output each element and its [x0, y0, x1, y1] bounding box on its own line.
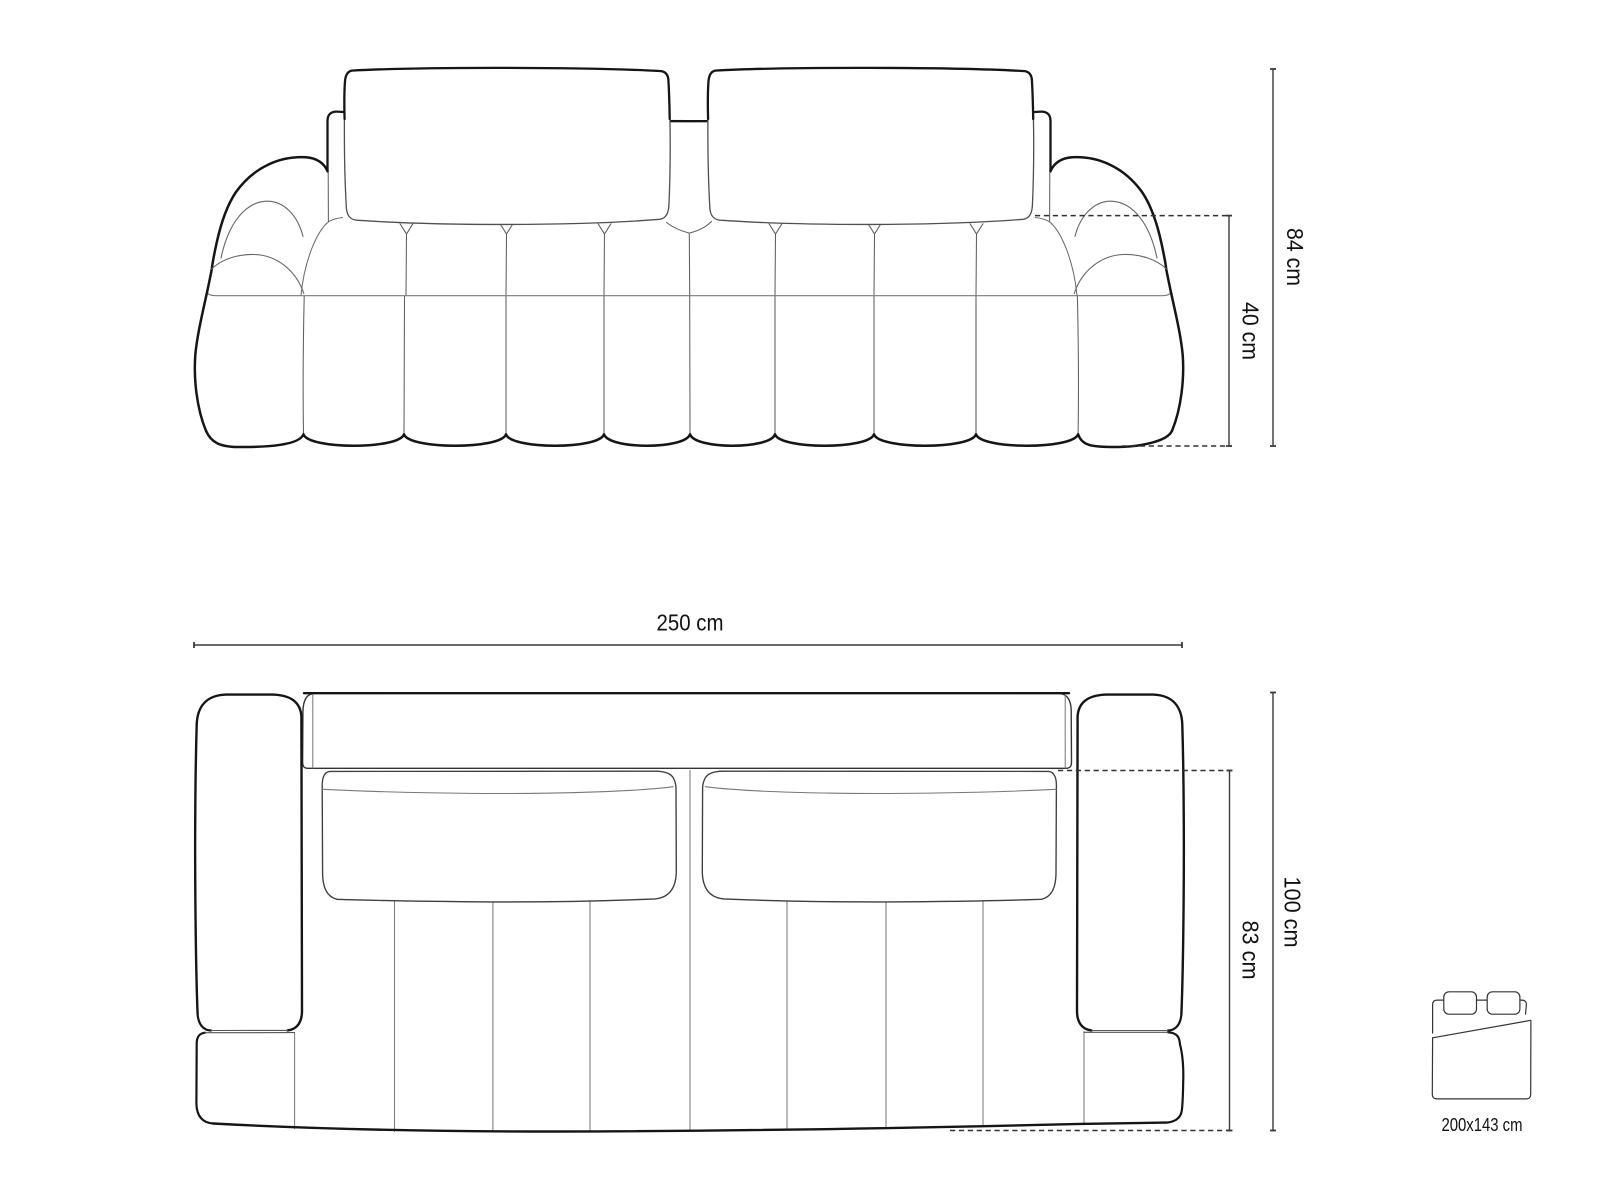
svg-text:83 cm: 83 cm [1238, 921, 1264, 980]
svg-text:100 cm: 100 cm [1280, 877, 1306, 948]
svg-text:84 cm: 84 cm [1282, 228, 1308, 286]
svg-text:250 cm: 250 cm [657, 610, 724, 636]
svg-text:40 cm: 40 cm [1238, 302, 1264, 360]
svg-text:200x143 cm: 200x143 cm [1442, 1115, 1523, 1135]
